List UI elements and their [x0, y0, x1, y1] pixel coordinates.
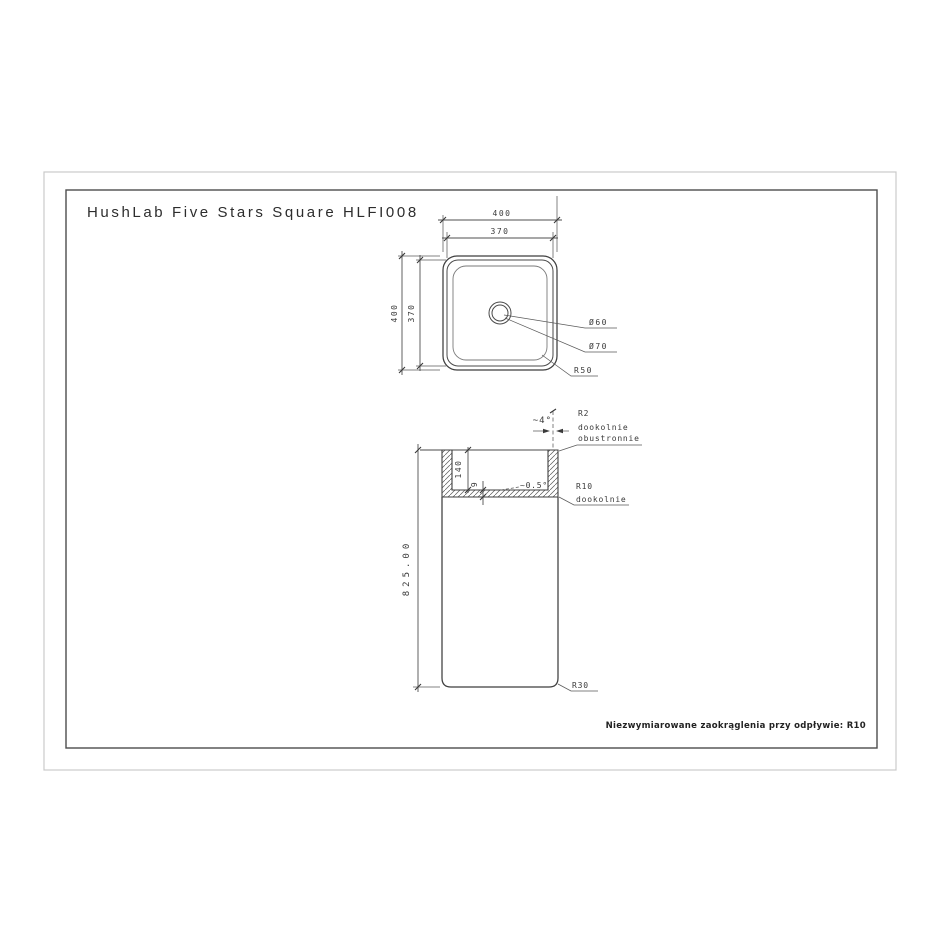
- base-radius-callout: R30: [558, 681, 598, 691]
- base-radius-label: R30: [572, 681, 589, 690]
- drawing-sheet: HushLab Five Stars Square HLFI008 400 37…: [0, 0, 940, 940]
- basin-outer-edge: [443, 256, 557, 370]
- leader-corner-radius: R50: [542, 355, 598, 376]
- dim-top-width-outer: 400: [438, 196, 562, 252]
- dim-text: 825.00: [402, 540, 412, 597]
- rim-radius-note-line1: dookolnie: [578, 423, 629, 432]
- inner-frame: [66, 190, 877, 748]
- bottom-slope-detail: ~0.5°: [501, 481, 548, 490]
- dim-text: 370: [491, 227, 510, 236]
- arrowhead: [556, 429, 563, 433]
- rim-radius-note-line2: obustronnie: [578, 434, 640, 443]
- basin-floor-edge: [453, 266, 547, 360]
- draft-angle-label: ~4°: [533, 416, 552, 426]
- draft-angle-detail: ~4°: [533, 409, 569, 449]
- bottom-radius-note: dookolnie: [576, 495, 627, 504]
- dim-total-height: 825.00: [402, 444, 440, 692]
- dim-text: 400: [493, 209, 512, 218]
- pedestal-outline: [442, 497, 558, 687]
- bottom-radius-callout: R10 dookolnie: [559, 482, 629, 505]
- dim-left-height-inner: 370: [407, 255, 446, 371]
- outer-frame: [44, 172, 896, 770]
- arrowhead: [543, 429, 550, 433]
- page-title: HushLab Five Stars Square HLFI008: [87, 204, 419, 221]
- bottom-slope-label: ~0.5°: [520, 481, 548, 490]
- section-view: ~4° R2 dookolnie obustronnie 140 9 ~0.5°: [402, 409, 642, 692]
- basin-rim-inner-edge: [447, 260, 553, 366]
- dim-top-width-inner: 370: [442, 227, 558, 258]
- rim-radius-label: R2: [578, 409, 589, 418]
- drain-hole-diameter-label: Ø60: [589, 317, 608, 327]
- leader-line: [559, 445, 642, 451]
- bottom-radius-label: R10: [576, 482, 593, 491]
- dim-basin-depth: 140: [454, 447, 471, 493]
- footnote: Niezwymiarowane zaokrąglenia przy odpływ…: [606, 721, 866, 731]
- dim-text: 140: [454, 460, 463, 479]
- corner-radius-label: R50: [574, 366, 593, 375]
- rim-radius-callout: R2 dookolnie obustronnie: [559, 409, 642, 451]
- drain-flange-diameter-label: Ø70: [589, 341, 608, 351]
- leader-drain-hole: Ø60: [504, 315, 617, 328]
- dim-text: 370: [407, 304, 416, 323]
- dim-text: 9: [470, 481, 479, 487]
- dim-text: 400: [390, 304, 399, 323]
- drawing-canvas: HushLab Five Stars Square HLFI008 400 37…: [0, 0, 940, 940]
- top-view: 400 370 400 370: [390, 196, 617, 376]
